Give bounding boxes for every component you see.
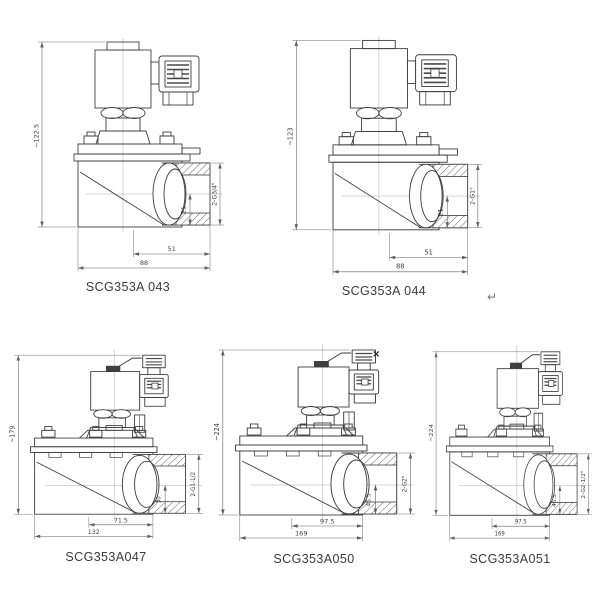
svg-text:~123: ~123 xyxy=(287,128,295,146)
model-label: SCG353A051 xyxy=(424,552,596,566)
valve-figure-scg353a051: ~22445.52-G2-1/2"97.5169 SCG353A051 xyxy=(424,330,596,566)
svg-text:71.5: 71.5 xyxy=(114,518,128,525)
svg-text:132: 132 xyxy=(88,529,100,536)
valve-figure-scg353a043: ~122.5212-G3/4"5188 SCG353A 043 xyxy=(28,24,228,294)
svg-text:30: 30 xyxy=(156,496,162,503)
svg-text:~224: ~224 xyxy=(428,424,434,442)
valve-drawing-scg353a050: ~22445.52-G2"97.5169 xyxy=(208,328,420,548)
svg-text:88: 88 xyxy=(396,263,404,271)
valve-figure-scg353a047: ~179302-G1-1/271.5132 SCG353A047 xyxy=(4,334,208,564)
drawing-sheet: ~122.5212-G3/4"5188 SCG353A 043 ~123212-… xyxy=(0,0,600,600)
svg-text:21: 21 xyxy=(181,206,188,214)
svg-text:2-G2": 2-G2" xyxy=(402,475,409,492)
valve-drawing-scg353a051: ~22445.52-G2-1/2"97.5169 xyxy=(424,330,596,548)
svg-text:2-G1-1/2: 2-G1-1/2 xyxy=(191,472,197,497)
model-label: SCG353A050 xyxy=(208,552,420,566)
svg-text:~224: ~224 xyxy=(213,423,221,441)
svg-text:51: 51 xyxy=(424,248,432,256)
svg-text:~179: ~179 xyxy=(9,426,17,443)
valve-figure-scg353a044: ~123212-G1"5188 SCG353A 044 xyxy=(282,22,486,298)
valve-figure-scg353a050: ~22445.52-G2"97.5169 SCG353A050 xyxy=(208,328,420,566)
cross-scan-mark: × xyxy=(372,349,380,360)
svg-text:45.5: 45.5 xyxy=(552,494,558,507)
model-label: SCG353A 044 xyxy=(282,284,486,298)
valve-drawing-scg353a044: ~123212-G1"5188 xyxy=(282,22,486,280)
svg-text:88: 88 xyxy=(140,259,148,267)
svg-text:169: 169 xyxy=(495,531,505,537)
model-label: SCG353A047 xyxy=(4,550,208,564)
model-label: SCG353A 043 xyxy=(28,280,228,294)
svg-text:169: 169 xyxy=(295,530,308,538)
return-scan-mark: ↵ xyxy=(487,290,497,304)
svg-text:~122.5: ~122.5 xyxy=(33,124,41,148)
svg-text:51: 51 xyxy=(168,245,176,253)
svg-text:45.5: 45.5 xyxy=(366,493,373,506)
svg-text:21: 21 xyxy=(438,208,445,216)
svg-text:2-G1": 2-G1" xyxy=(469,187,476,205)
valve-drawing-scg353a047: ~179302-G1-1/271.5132 xyxy=(4,334,208,546)
valve-drawing-scg353a043: ~122.5212-G3/4"5188 xyxy=(28,24,228,276)
svg-text:2-G3/4": 2-G3/4" xyxy=(212,182,219,206)
svg-text:2-G2-1/2": 2-G2-1/2" xyxy=(582,471,588,499)
svg-text:97.5: 97.5 xyxy=(320,518,335,526)
svg-text:97.5: 97.5 xyxy=(515,519,527,525)
